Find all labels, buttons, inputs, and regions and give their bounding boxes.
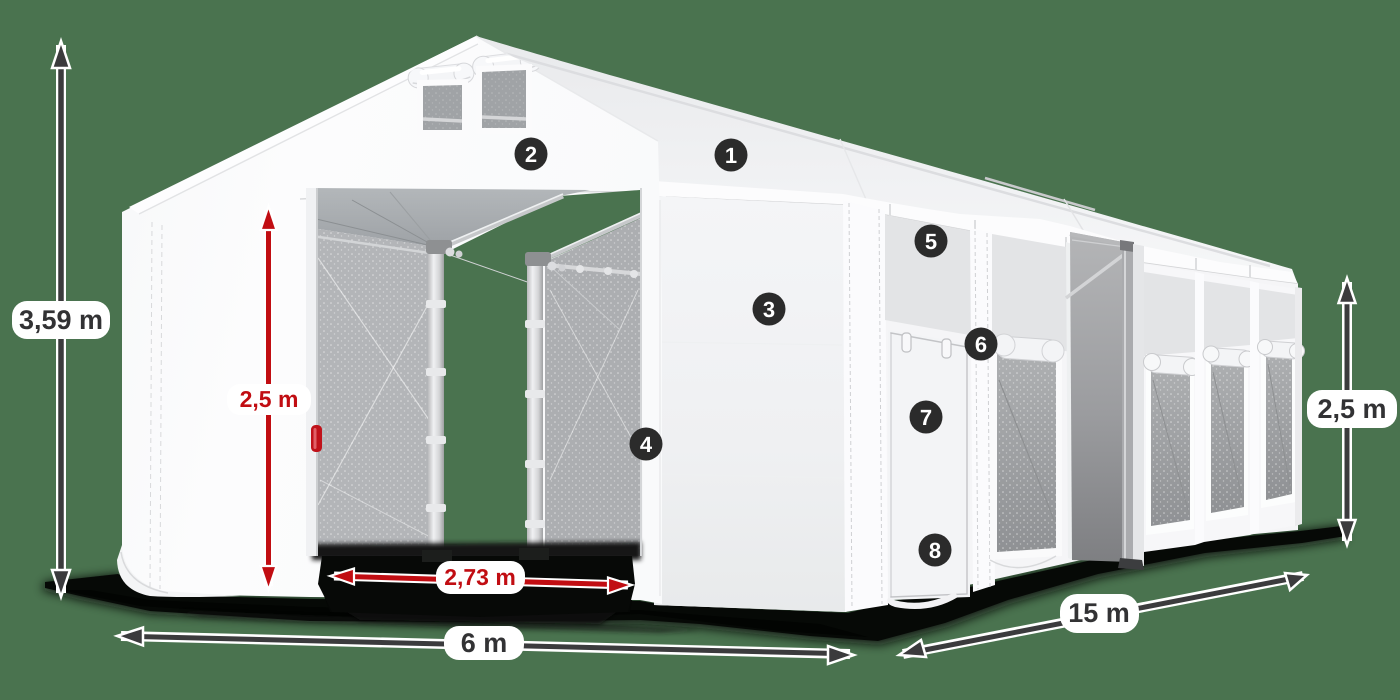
svg-text:3,59 m: 3,59 m: [19, 305, 103, 335]
svg-text:2: 2: [525, 142, 537, 167]
svg-text:6: 6: [975, 332, 987, 357]
svg-text:7: 7: [920, 405, 932, 430]
svg-text:5: 5: [925, 229, 937, 254]
svg-text:15 m: 15 m: [1068, 598, 1130, 628]
svg-text:2,5 m: 2,5 m: [240, 386, 299, 412]
svg-text:1: 1: [725, 143, 737, 168]
svg-text:4: 4: [640, 432, 653, 457]
svg-text:2,5 m: 2,5 m: [1317, 394, 1386, 424]
svg-text:8: 8: [929, 538, 941, 563]
svg-text:6 m: 6 m: [461, 628, 508, 658]
svg-text:3: 3: [763, 297, 775, 322]
svg-text:2,73 m: 2,73 m: [444, 564, 516, 590]
